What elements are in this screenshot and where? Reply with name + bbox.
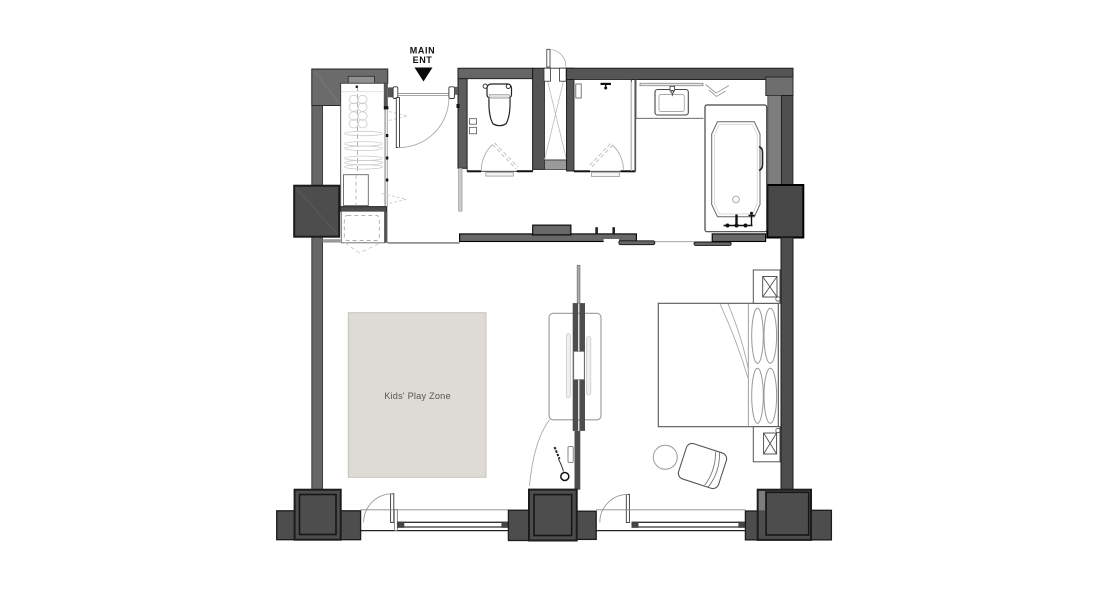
svg-text:Kids' Play Zone: Kids' Play Zone xyxy=(384,391,451,401)
svg-text:MAIN: MAIN xyxy=(410,46,435,56)
svg-text:ENT: ENT xyxy=(413,55,433,65)
